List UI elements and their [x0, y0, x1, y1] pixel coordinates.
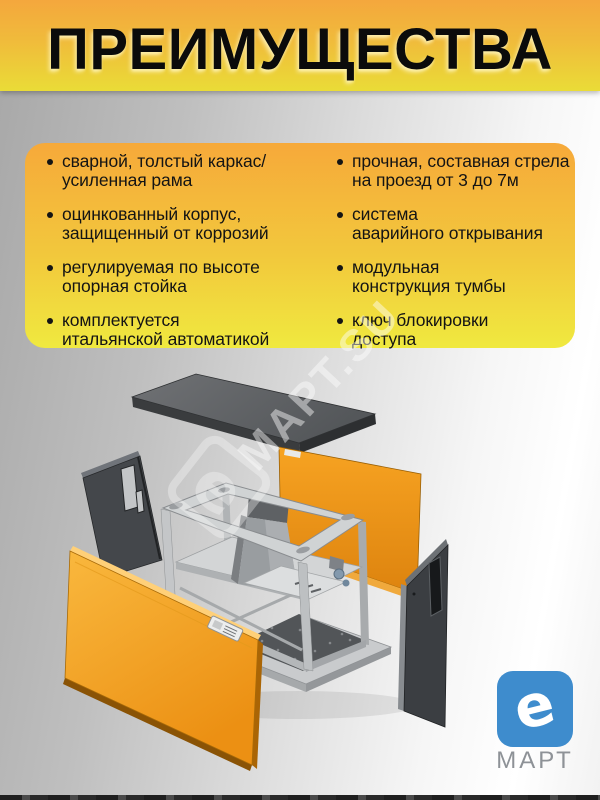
advantages-column-right: прочная, составная стрелана проезд от 3 … [337, 152, 559, 340]
door-slot [136, 490, 144, 513]
bullet-dot [337, 159, 343, 165]
lid-panel [132, 374, 376, 453]
advantages-column-left: сварной, толстый каркас/усиленная рамаоц… [47, 152, 309, 340]
advantage-item: модульнаяконструкция тумбы [337, 258, 559, 296]
advantage-item: регулируемая по высотеопорная стойка [47, 258, 309, 296]
advantages-panel: сварной, толстый каркас/усиленная рамаоц… [25, 143, 575, 348]
logo-brand-text: МАРТ [487, 747, 583, 775]
advantage-line: опорная стойка [62, 277, 260, 296]
advantage-line: модульная [352, 258, 506, 277]
advantage-text: модульнаяконструкция тумбы [352, 258, 506, 296]
advantage-line: комплектуется [62, 311, 269, 330]
advantage-text: сварной, толстый каркас/усиленная рама [62, 152, 266, 190]
advantage-text: комплектуетсяитальянской автоматикой [62, 311, 269, 349]
advantage-line: защищенный от коррозий [62, 224, 269, 243]
advantage-item: комплектуетсяитальянской автоматикой [47, 311, 309, 349]
page-title: ПРЕИМУЩЕСТВА [47, 13, 553, 79]
advantage-item: системааварийного открывания [337, 205, 559, 243]
logo-e-icon: e [508, 673, 562, 745]
bottom-edge-strip [0, 795, 600, 800]
bullet-dot [47, 212, 53, 218]
advantage-line: доступа [352, 330, 488, 349]
advantage-item: сварной, толстый каркас/усиленная рама [47, 152, 309, 190]
bullet-dot [337, 212, 343, 218]
advantage-text: ключ блокировкидоступа [352, 311, 488, 349]
bullet-dot [337, 318, 343, 324]
advantage-line: прочная, составная стрела [352, 152, 569, 171]
advantage-line: аварийного открывания [352, 224, 543, 243]
advantage-text: системааварийного открывания [352, 205, 543, 243]
logo-badge: e [497, 671, 573, 747]
advantage-line: сварной, толстый каркас/ [62, 152, 266, 171]
door-slot [429, 557, 442, 616]
advantage-text: прочная, составная стрелана проезд от 3 … [352, 152, 569, 190]
advantage-line: регулируемая по высоте [62, 258, 260, 277]
advantage-line: на проезд от 3 до 7м [352, 171, 569, 190]
bullet-dot [47, 159, 53, 165]
bullet-dot [337, 265, 343, 271]
advantage-text: регулируемая по высотеопорная стойка [62, 258, 260, 296]
poster: ПРЕИМУЩЕСТВА сварной, толстый каркас/уси… [0, 0, 600, 800]
bullet-dot [47, 318, 53, 324]
advantage-line: система [352, 205, 543, 224]
advantage-line: конструкция тумбы [352, 277, 506, 296]
advantage-line: ключ блокировки [352, 311, 488, 330]
advantage-text: оцинкованный корпус,защищенный от корроз… [62, 205, 269, 243]
bullet-dot [47, 265, 53, 271]
advantage-line: усиленная рама [62, 171, 266, 190]
advantage-line: итальянской автоматикой [62, 330, 269, 349]
header-banner: ПРЕИМУЩЕСТВА [0, 0, 600, 91]
advantage-item: оцинкованный корпус,защищенный от корроз… [47, 205, 309, 243]
advantage-item: прочная, составная стрелана проезд от 3 … [337, 152, 559, 190]
advantage-item: ключ блокировкидоступа [337, 311, 559, 349]
advantage-line: оцинкованный корпус, [62, 205, 269, 224]
